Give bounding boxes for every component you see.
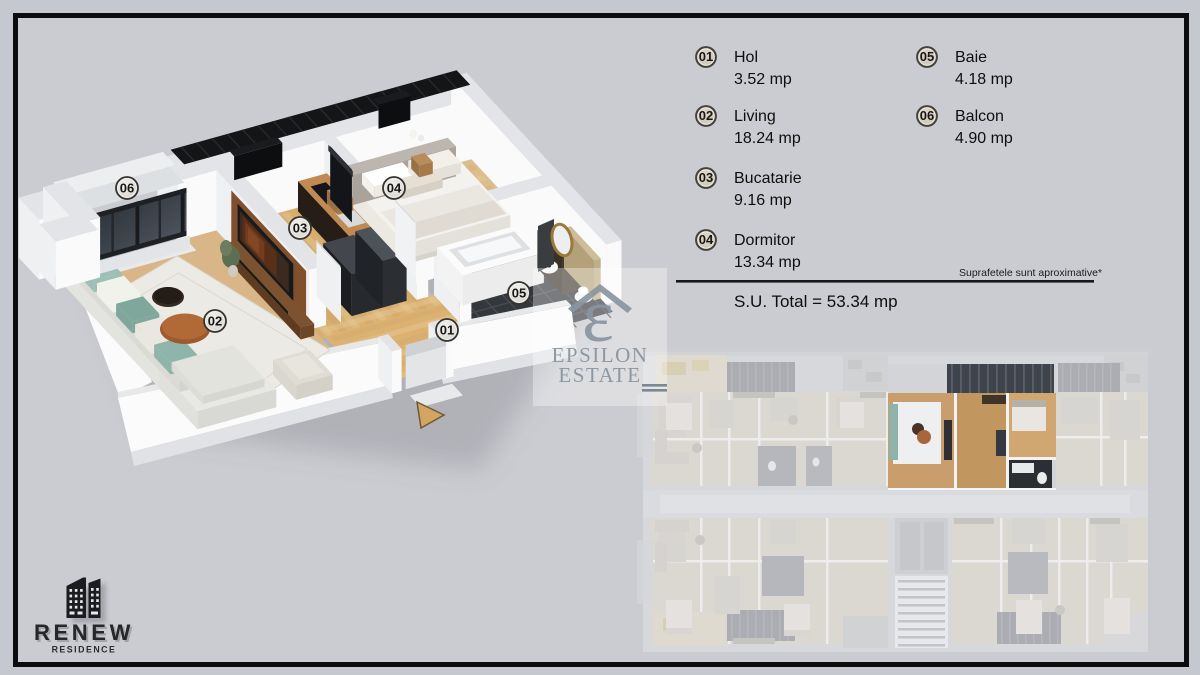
svg-text:Balcon: Balcon bbox=[955, 108, 1004, 125]
svg-text:01: 01 bbox=[440, 323, 454, 338]
svg-text:03: 03 bbox=[699, 170, 713, 185]
svg-text:Dormitor: Dormitor bbox=[734, 232, 796, 249]
svg-text:9.16 mp: 9.16 mp bbox=[734, 192, 792, 209]
svg-text:04: 04 bbox=[387, 181, 402, 196]
svg-text:04: 04 bbox=[699, 232, 714, 247]
svg-text:4.90 mp: 4.90 mp bbox=[955, 130, 1013, 147]
svg-text:Baie: Baie bbox=[955, 49, 987, 66]
svg-text:ESTATE: ESTATE bbox=[558, 363, 641, 387]
svg-text:05: 05 bbox=[920, 49, 934, 64]
svg-text:03: 03 bbox=[293, 221, 307, 236]
svg-text:05: 05 bbox=[512, 286, 526, 301]
svg-text:RESIDENCE: RESIDENCE bbox=[52, 645, 117, 655]
svg-text:02: 02 bbox=[208, 314, 222, 329]
svg-text:18.24 mp: 18.24 mp bbox=[734, 130, 801, 147]
svg-text:4.18 mp: 4.18 mp bbox=[955, 71, 1013, 88]
svg-text:3.52 mp: 3.52 mp bbox=[734, 71, 792, 88]
svg-text:01: 01 bbox=[699, 49, 713, 64]
svg-text:13.34 mp: 13.34 mp bbox=[734, 254, 801, 271]
svg-text:06: 06 bbox=[920, 108, 934, 123]
svg-text:Living: Living bbox=[734, 108, 776, 125]
svg-text:06: 06 bbox=[120, 181, 134, 196]
svg-text:Bucatarie: Bucatarie bbox=[734, 170, 802, 187]
svg-text:RENEW: RENEW bbox=[34, 620, 134, 645]
svg-text:Hol: Hol bbox=[734, 49, 758, 66]
svg-text:02: 02 bbox=[699, 108, 713, 123]
svg-text:S.U. Total = 53.34 mp: S.U. Total = 53.34 mp bbox=[734, 292, 898, 311]
svg-text:Suprafetele sunt aproximative*: Suprafetele sunt aproximative* bbox=[959, 267, 1102, 279]
